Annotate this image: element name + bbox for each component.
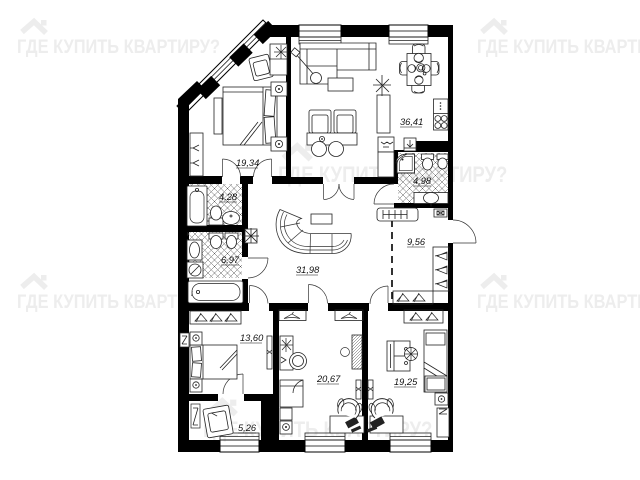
- svg-text:20,67: 20,67: [316, 374, 341, 384]
- svg-text:13,60: 13,60: [240, 333, 264, 343]
- svg-text:19,34: 19,34: [236, 158, 259, 168]
- svg-text:5,26: 5,26: [238, 423, 257, 433]
- svg-text:i: i: [191, 290, 193, 298]
- svg-text:4,28: 4,28: [219, 192, 238, 202]
- svg-text:36,41: 36,41: [400, 117, 423, 127]
- svg-text:6,97: 6,97: [221, 255, 240, 265]
- svg-text:31,98: 31,98: [296, 265, 320, 275]
- svg-text:19,25: 19,25: [394, 377, 418, 387]
- svg-text:4,98: 4,98: [413, 176, 432, 186]
- svg-text:9,56: 9,56: [407, 237, 426, 247]
